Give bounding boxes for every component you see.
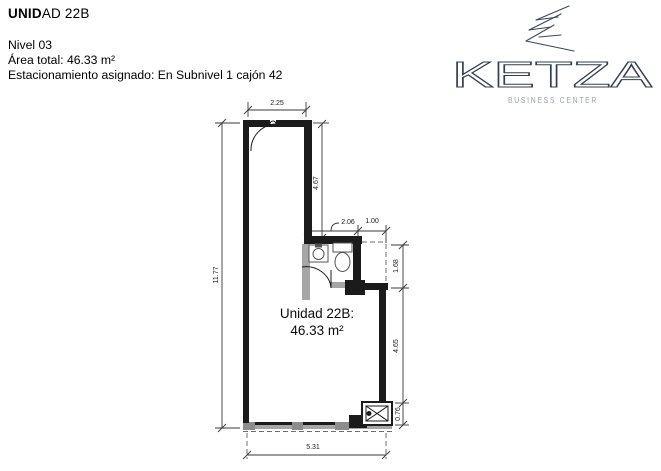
window-mullion — [243, 422, 255, 430]
dim-label-corridor: 4.67 — [313, 166, 321, 200]
top-wall — [243, 120, 312, 127]
dim-label-left-height: 11.77 — [213, 258, 221, 292]
shaft-box-icon — [362, 402, 392, 425]
dim-label-top-width: 2.25 — [260, 100, 294, 108]
toilet-tank-icon — [333, 243, 352, 252]
floorplan-drawing — [0, 0, 661, 471]
corridor-right-wall — [304, 120, 312, 244]
dim-label-right-upper: 1.68 — [393, 249, 401, 283]
floorplan-sheet: { "header": { "title_bold": "UNID", "tit… — [0, 0, 661, 471]
unit-area-line1: Unidad 22B: — [280, 306, 354, 321]
dim-label-shaft-height: 0.76 — [395, 397, 403, 431]
unit-area-line2: 46.33 m² — [290, 323, 343, 338]
dim-label-right-lower: 4.65 — [393, 329, 401, 363]
doors — [251, 121, 331, 288]
toilet-bowl-icon — [335, 253, 350, 272]
window-mullion — [292, 422, 303, 430]
window-mullion — [335, 422, 349, 430]
dim-label-bath-offset: 1.00 — [355, 218, 389, 226]
entry-door-swing — [251, 124, 277, 151]
dim-label-bottom-width: 5.31 — [296, 444, 330, 452]
unit-area-label: Unidad 22B:46.33 m² — [252, 305, 382, 339]
bathroom-right-wall — [353, 236, 361, 286]
bathroom-fixtures — [309, 243, 352, 272]
left-wall — [243, 120, 249, 423]
bathroom-door-threshold — [331, 282, 345, 288]
